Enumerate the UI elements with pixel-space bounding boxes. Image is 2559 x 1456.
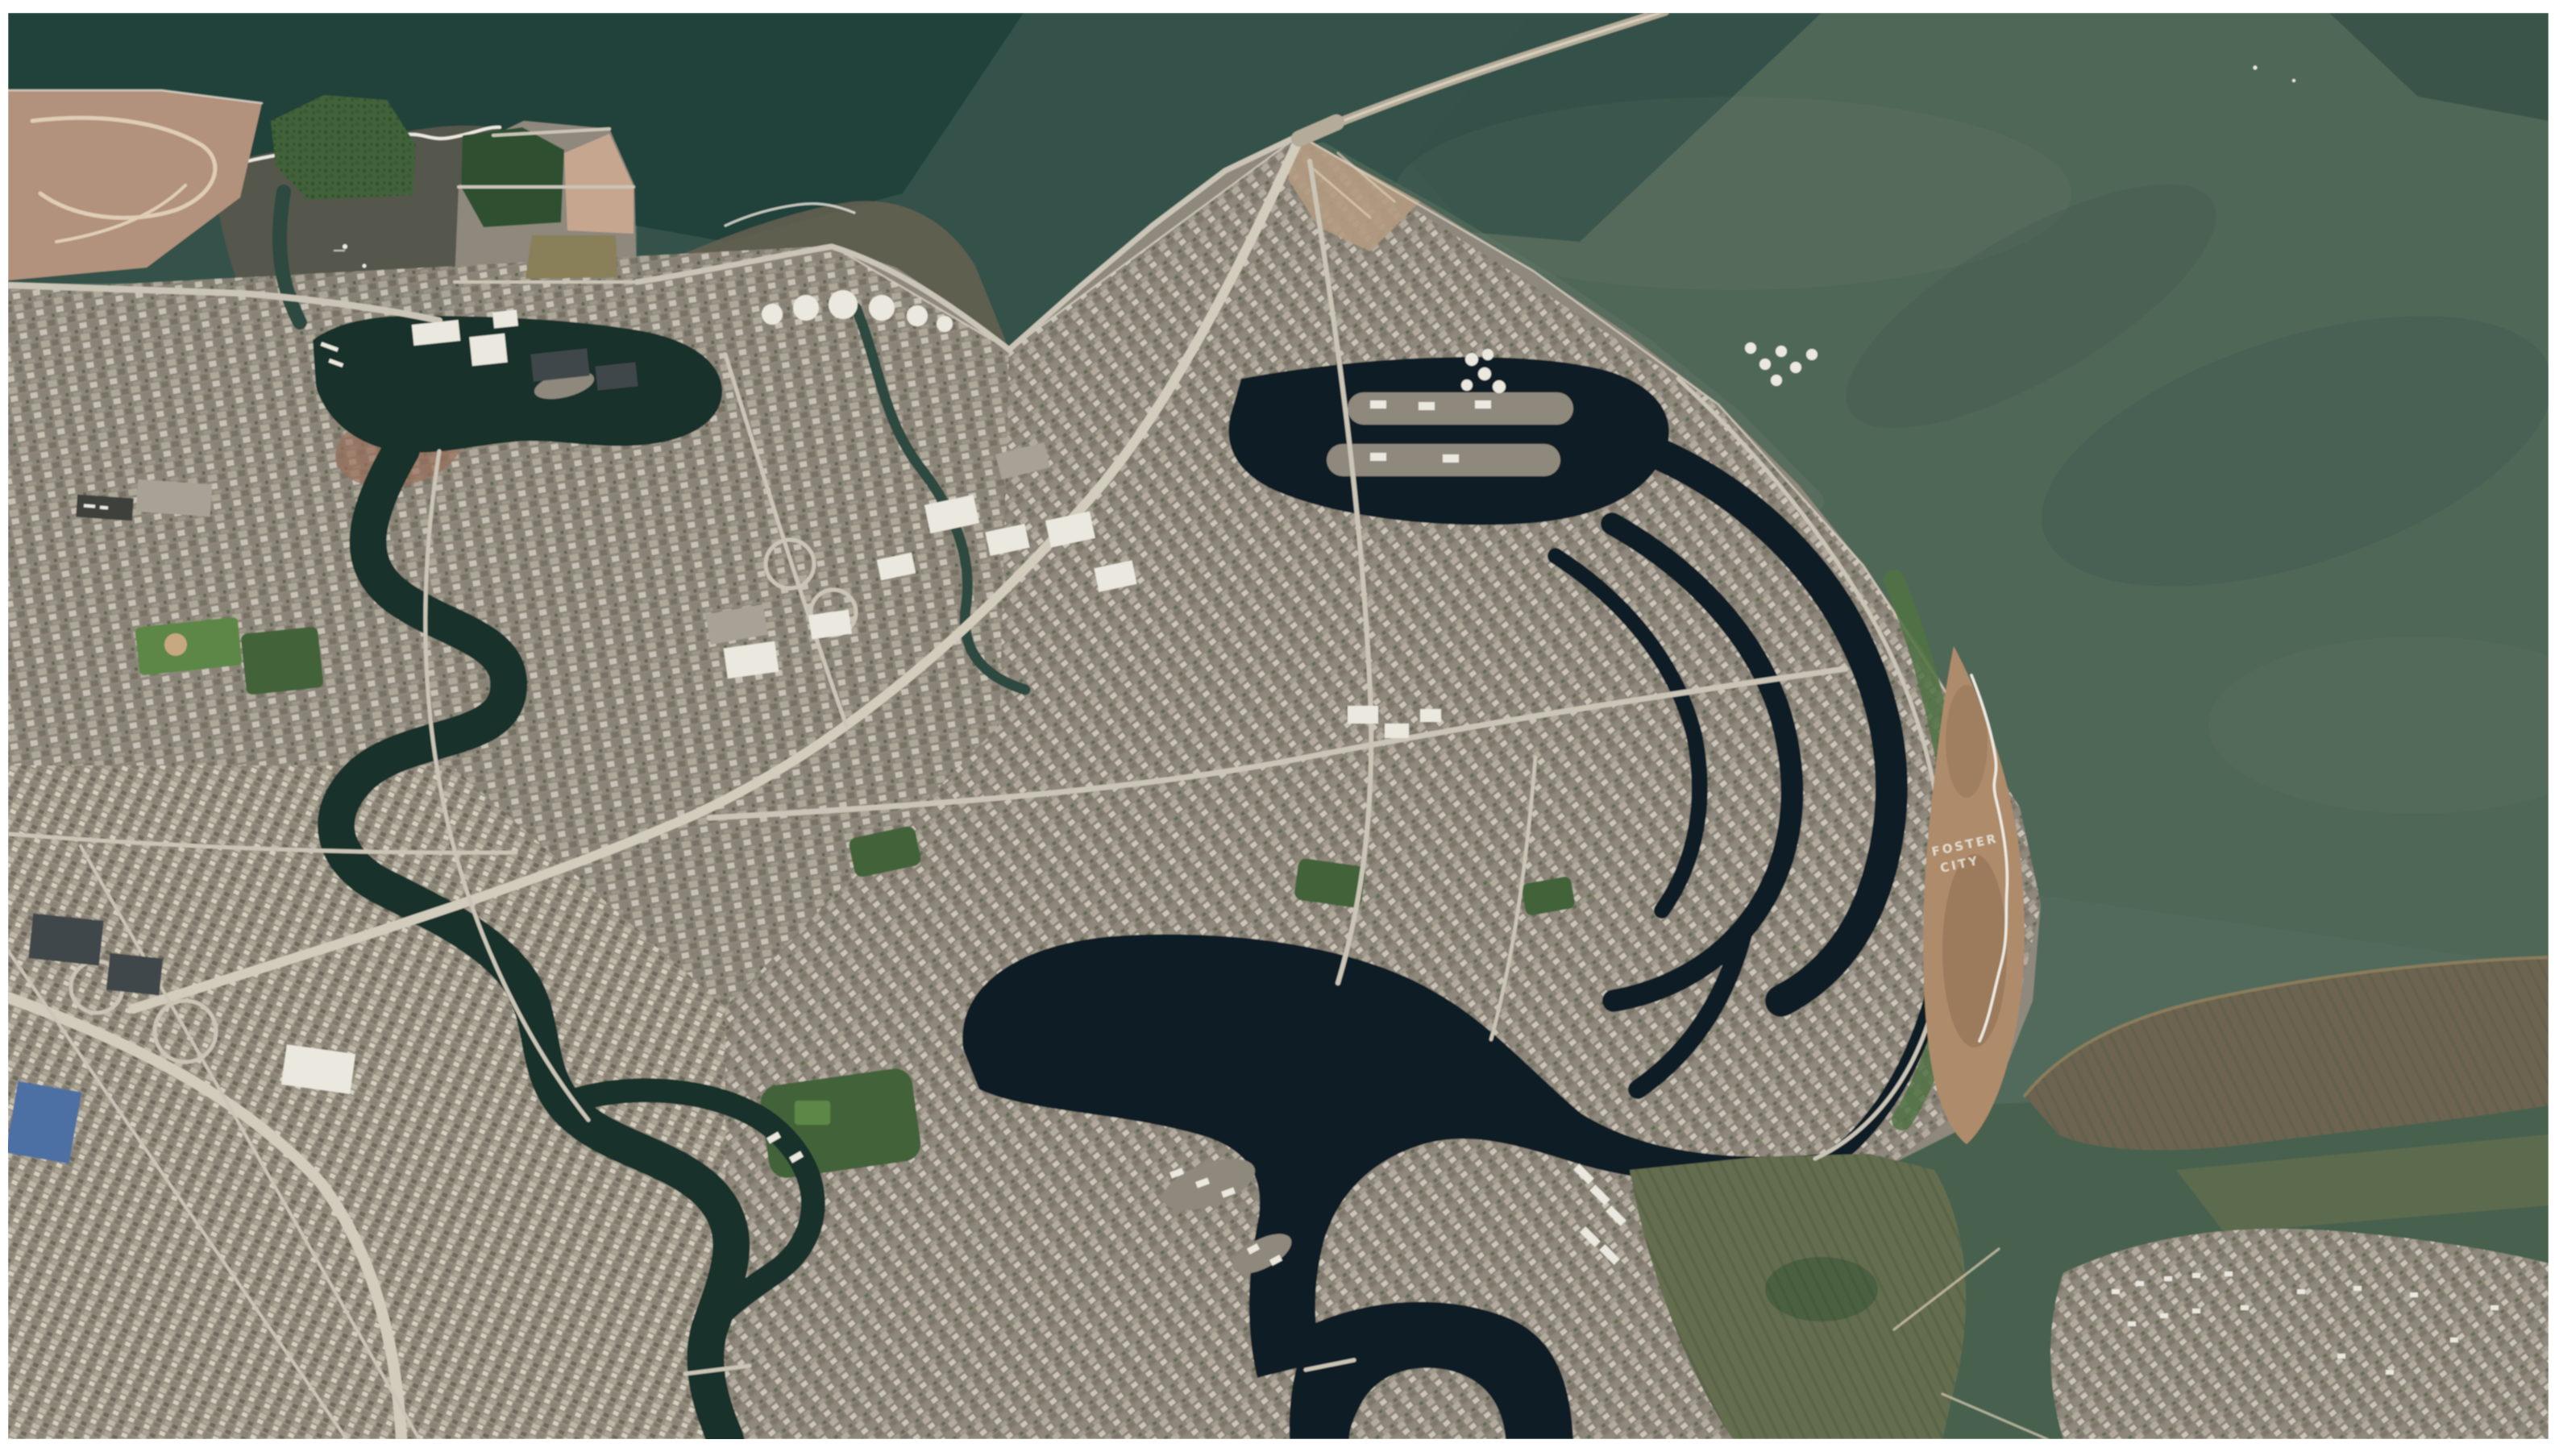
satellite-image: FOSTER CITY bbox=[0, 0, 2559, 1456]
costco-rooftop bbox=[76, 495, 134, 521]
blue-rooftop bbox=[6, 1081, 81, 1164]
figure-page: FOSTER CITY bbox=[0, 0, 2559, 1456]
corner-residential bbox=[2050, 1229, 2549, 1439]
